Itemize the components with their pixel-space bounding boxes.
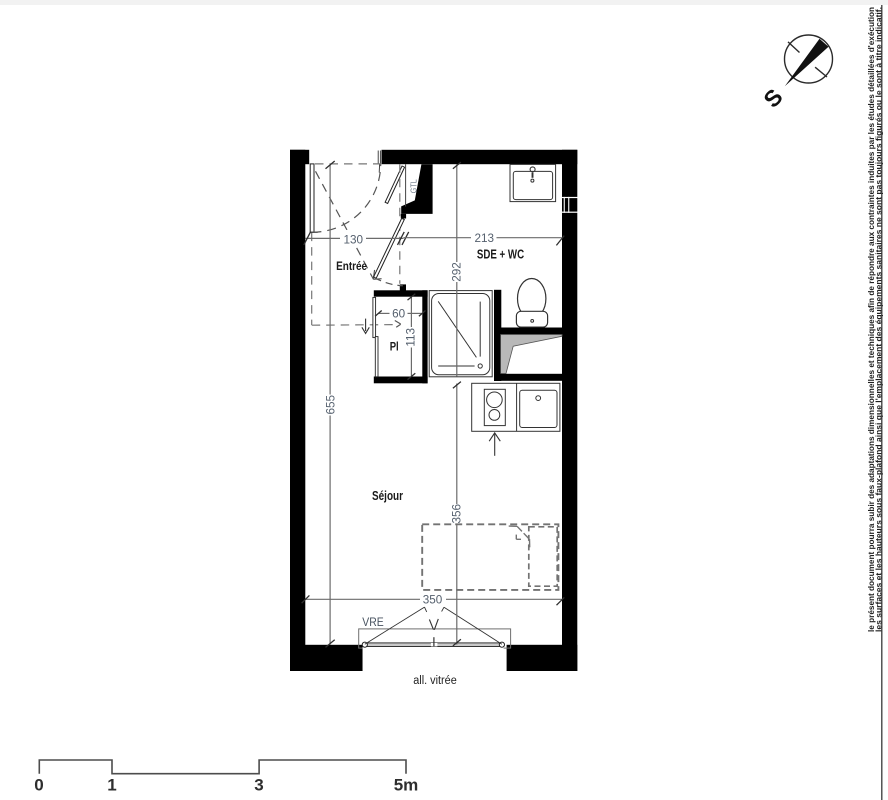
svg-text:all. vitrée: all. vitrée <box>413 675 457 687</box>
svg-text:Entrée: Entrée <box>336 259 367 273</box>
svg-text:0: 0 <box>34 776 43 795</box>
svg-text:1: 1 <box>107 776 116 795</box>
svg-text:VRE: VRE <box>362 617 384 629</box>
svg-text:356: 356 <box>450 504 463 524</box>
svg-text:213: 213 <box>475 232 495 245</box>
svg-text:113: 113 <box>405 328 418 347</box>
svg-text:5m: 5m <box>394 776 419 795</box>
svg-text:GTL: GTL <box>410 179 419 193</box>
svg-text:350: 350 <box>423 594 443 607</box>
svg-text:3: 3 <box>254 776 263 795</box>
svg-text:Pl: Pl <box>390 339 399 353</box>
svg-text:Séjour: Séjour <box>372 489 403 503</box>
svg-text:60: 60 <box>392 307 406 320</box>
svg-text:292: 292 <box>450 262 463 282</box>
svg-text:130: 130 <box>343 234 363 247</box>
svg-text:655: 655 <box>325 395 338 415</box>
svg-text:SDE + WC: SDE + WC <box>477 248 524 262</box>
